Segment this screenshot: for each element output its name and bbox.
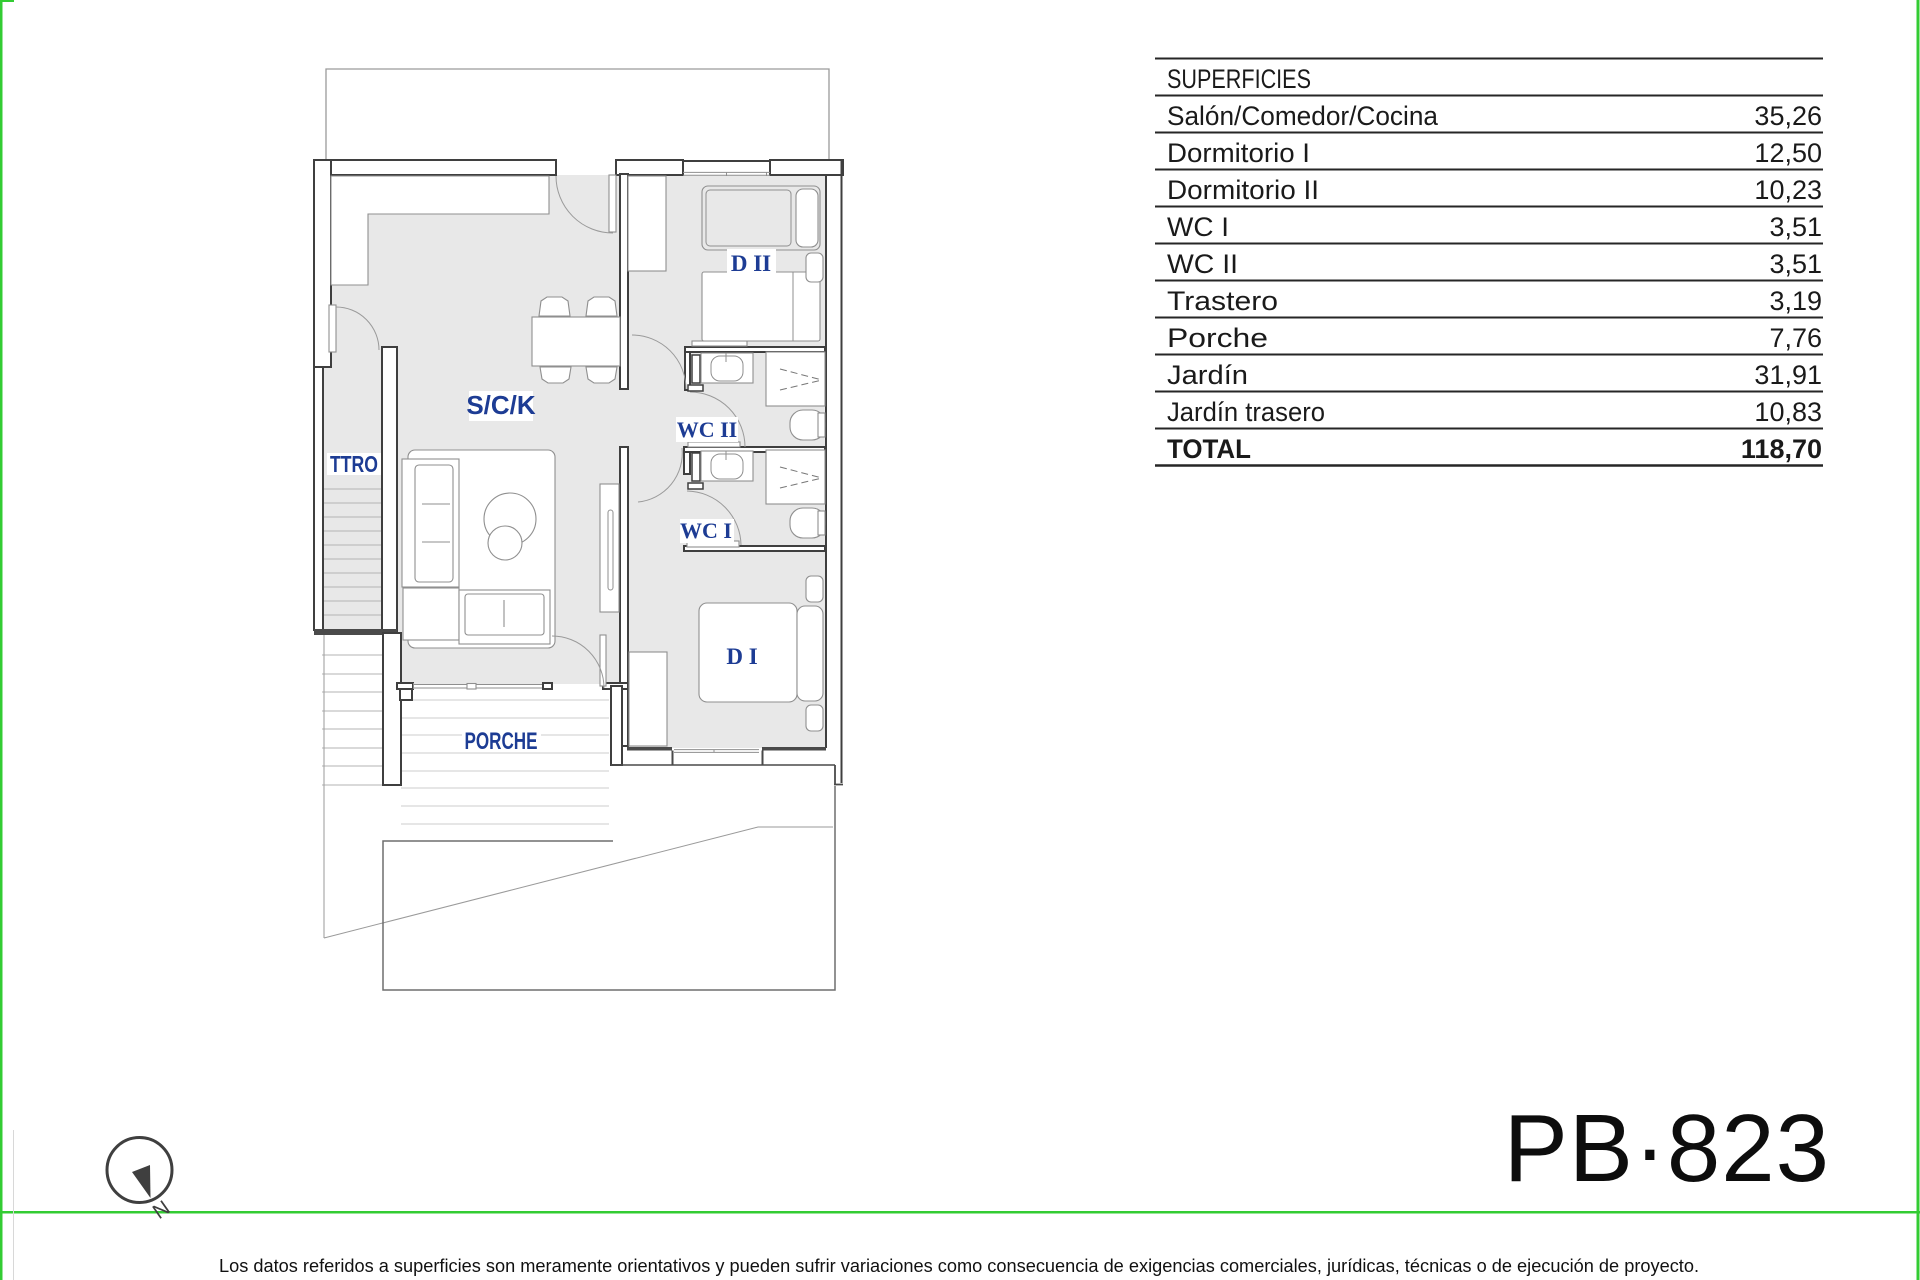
svg-text:Salón/Comedor/Cocina: Salón/Comedor/Cocina: [1167, 101, 1439, 131]
svg-text:Dormitorio II: Dormitorio II: [1167, 175, 1319, 205]
svg-text:S/C/K: S/C/K: [466, 390, 536, 420]
svg-text:WC I: WC I: [1167, 212, 1229, 242]
svg-text:3,19: 3,19: [1769, 286, 1822, 316]
svg-text:31,91: 31,91: [1754, 360, 1822, 390]
svg-text:10,23: 10,23: [1754, 175, 1822, 205]
svg-text:10,83: 10,83: [1754, 397, 1822, 427]
svg-text:TTRO: TTRO: [330, 451, 378, 477]
svg-text:Jardín: Jardín: [1167, 360, 1248, 390]
svg-text:Trastero: Trastero: [1167, 286, 1278, 316]
svg-text:WC II: WC II: [677, 417, 738, 442]
svg-text:Jardín trasero: Jardín trasero: [1167, 397, 1325, 427]
svg-text:Los datos referidos a superfic: Los datos referidos a superficies son me…: [219, 1256, 1699, 1276]
svg-text:PORCHE: PORCHE: [465, 728, 538, 755]
svg-text:3,51: 3,51: [1769, 212, 1822, 242]
svg-text:WC II: WC II: [1167, 249, 1238, 279]
svg-text:118,70: 118,70: [1741, 434, 1822, 464]
svg-text:Porche: Porche: [1167, 323, 1268, 353]
svg-text:3,51: 3,51: [1769, 249, 1822, 279]
svg-text:D II: D II: [731, 251, 771, 276]
svg-text:SUPERFICIES: SUPERFICIES: [1167, 64, 1311, 94]
svg-text:12,50: 12,50: [1754, 138, 1822, 168]
svg-text:7,76: 7,76: [1769, 323, 1822, 353]
svg-text:D I: D I: [726, 644, 757, 669]
svg-text:PB·823: PB·823: [1504, 1095, 1830, 1202]
svg-text:WC I: WC I: [680, 518, 732, 543]
svg-text:Dormitorio I: Dormitorio I: [1167, 138, 1310, 168]
svg-text:35,26: 35,26: [1754, 101, 1822, 131]
svg-text:TOTAL: TOTAL: [1167, 434, 1251, 464]
